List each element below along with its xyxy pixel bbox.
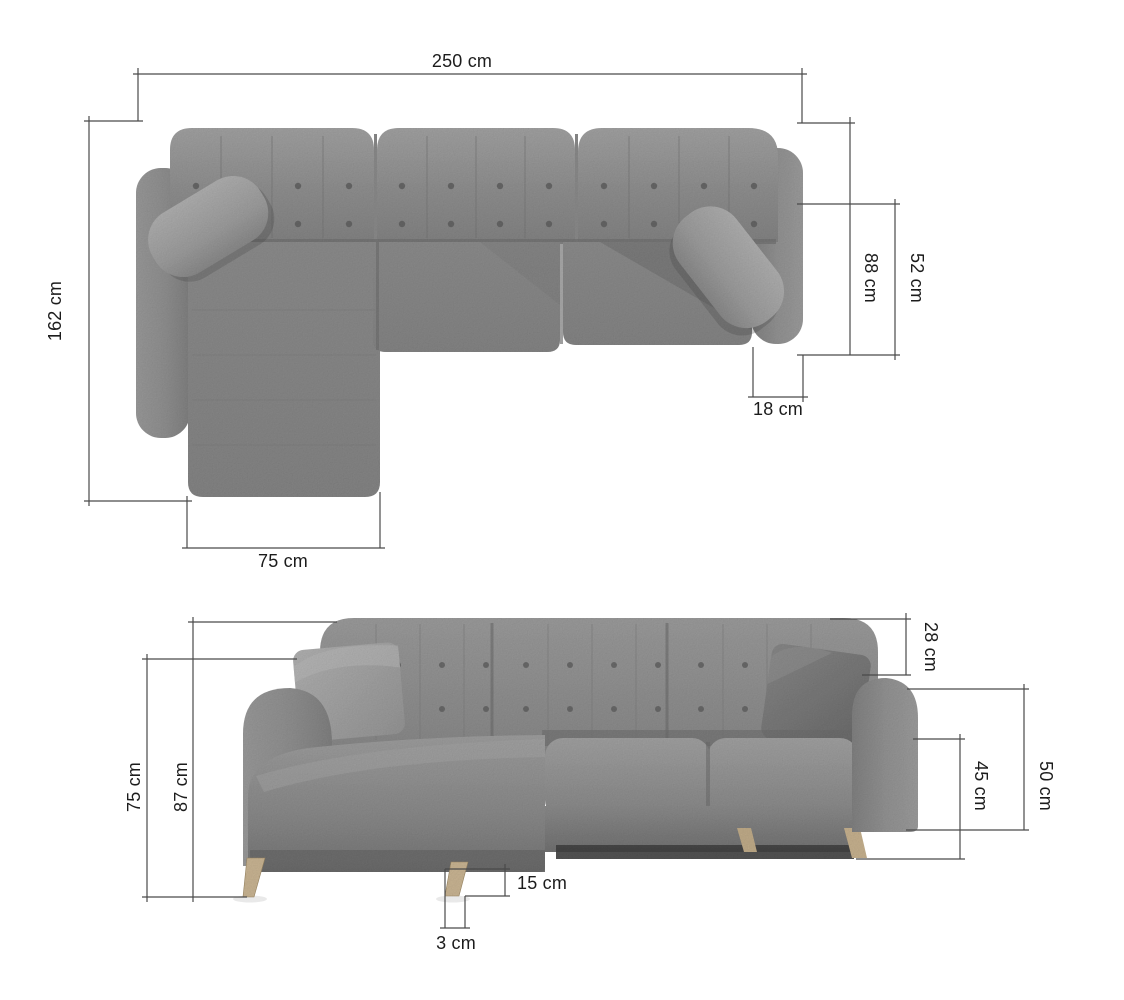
dim-total-width-lines	[133, 68, 807, 123]
sofa-top-view-illustration	[136, 128, 803, 497]
dim-label-leg-offset: 3 cm	[436, 933, 476, 953]
dim-label-seat-depth: 52 cm	[907, 253, 927, 303]
sofa-dimension-diagram: 250 cm 162 cm 75 cm 88 cm 52 cm 18 cm 75…	[0, 0, 1124, 1000]
dim-armrest-height-lines	[906, 684, 1029, 830]
dim-label-total-width: 250 cm	[432, 51, 492, 71]
dim-label-total-depth: 162 cm	[45, 281, 65, 341]
dim-label-leg-height: 15 cm	[517, 873, 567, 893]
back-cushion-gap	[575, 134, 578, 242]
top-chaise-seat	[188, 242, 380, 497]
dim-label-seat-height: 45 cm	[971, 761, 991, 811]
leg-front-left	[243, 858, 265, 897]
dim-label-armrest-width: 18 cm	[753, 399, 803, 419]
seat-gap	[560, 242, 563, 344]
top-back-cushion-3	[578, 128, 778, 242]
dim-seat-depth-lines	[797, 199, 900, 360]
cushion-gap	[706, 742, 710, 814]
dim-label-total-height: 87 cm	[171, 762, 191, 812]
dim-label-chaise-width: 75 cm	[258, 551, 308, 571]
dim-label-armrest-height: 50 cm	[1036, 761, 1056, 811]
sofa-front-view-illustration	[233, 618, 918, 903]
dim-label-armrest-floor-height: 75 cm	[124, 762, 144, 812]
seat-gap	[376, 242, 379, 350]
dim-inner-depth-lines	[797, 117, 900, 355]
dim-label-backrest-above-armrest: 28 cm	[921, 622, 941, 672]
diagram-canvas: 250 cm 162 cm 75 cm 88 cm 52 cm 18 cm 75…	[0, 0, 1124, 1000]
back-cushion-gap	[374, 134, 377, 242]
dim-chaise-width-lines	[182, 492, 385, 548]
dim-label-inner-depth: 88 cm	[861, 253, 881, 303]
front-right-armrest	[852, 678, 918, 832]
sofa-bed-mechanism	[556, 845, 854, 859]
